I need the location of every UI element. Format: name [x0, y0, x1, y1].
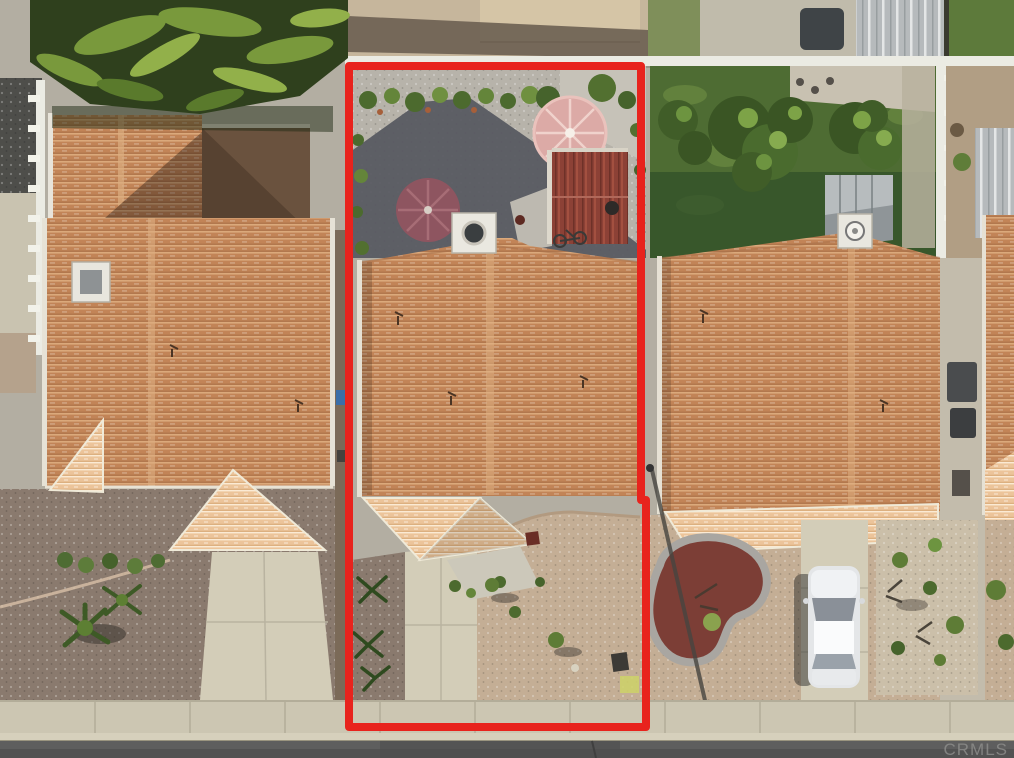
- trash-bin: [952, 470, 970, 496]
- front-grill: [525, 531, 540, 546]
- right-house-roof: [657, 214, 940, 552]
- crmls-watermark: CRMLS: [943, 740, 1008, 758]
- sidewalk: [0, 700, 1014, 741]
- shed-vent: [605, 201, 619, 215]
- street: [0, 741, 1014, 758]
- yellow-bin: [620, 676, 639, 693]
- left-property: [0, 78, 345, 703]
- left-driveway: [200, 552, 333, 700]
- right-property: [646, 60, 1014, 757]
- curb: [0, 733, 1014, 741]
- center-property: [350, 66, 646, 702]
- car-rear-window: [812, 654, 856, 669]
- neighbor-parked-car: [800, 8, 844, 50]
- car-windshield: [812, 598, 856, 621]
- parked-car: [794, 566, 865, 688]
- car-roof: [814, 621, 854, 654]
- backyard-grill: [515, 215, 525, 225]
- yard-grill: [611, 652, 629, 672]
- ac-unit: [947, 362, 977, 402]
- car-hood: [811, 570, 857, 598]
- left-house-roof: [42, 106, 335, 487]
- right-planting-bed: [876, 520, 978, 695]
- right-white-fence: [936, 60, 946, 258]
- aerial-photo: CRMLS: [0, 0, 1014, 758]
- blue-bin: [336, 390, 346, 405]
- maroon-umbrella: [396, 178, 460, 242]
